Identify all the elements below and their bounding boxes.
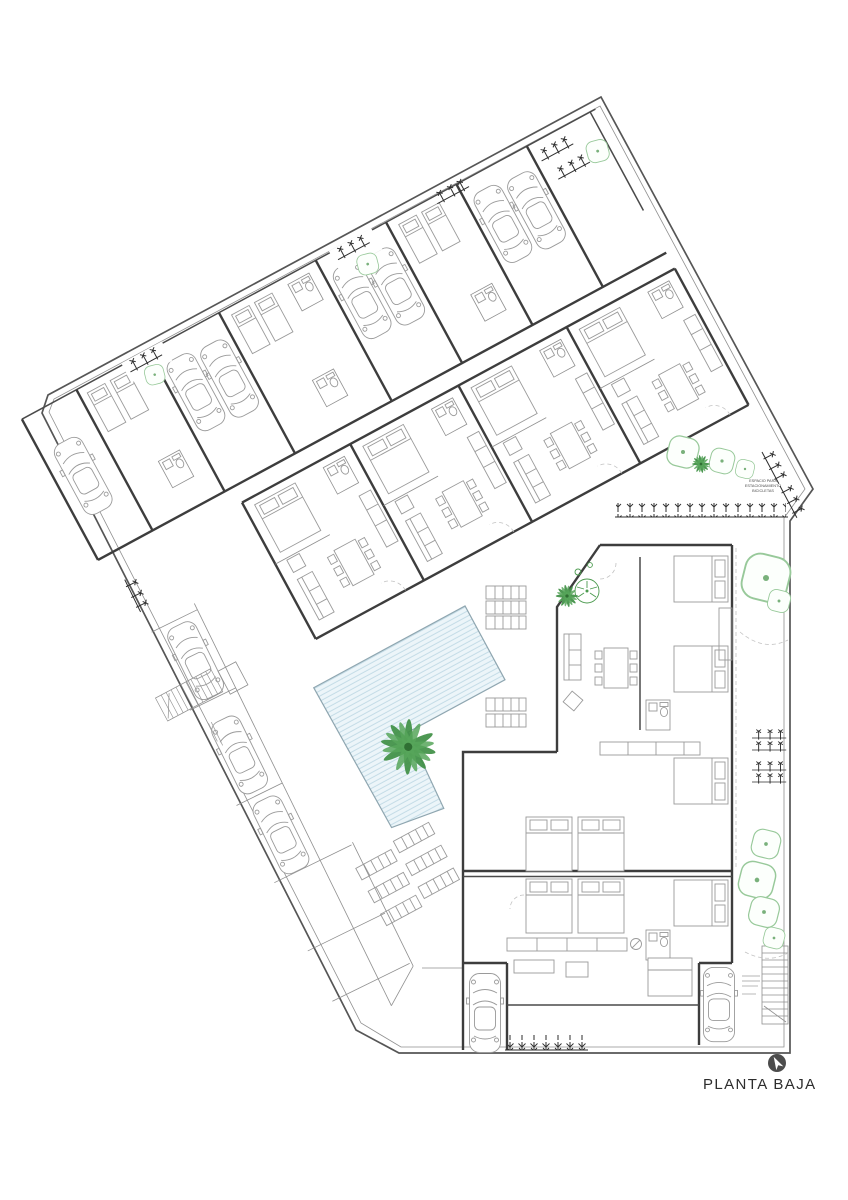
tree-icon: [747, 895, 782, 930]
street-ticks-icon: [537, 135, 575, 163]
right-garden-mid: [736, 827, 788, 958]
fence-ticks-right: [752, 730, 786, 784]
car-icon: [701, 967, 738, 1041]
bathroom: [288, 273, 323, 311]
bike-parking-line2: ESTACIONAMIENTO: [745, 484, 781, 488]
floor-plan-page: ESPACIO PARA ESTACIONAMIENTO BICICLETAS …: [0, 0, 848, 1200]
tree-icon: [575, 579, 599, 603]
tree-icon: [707, 446, 736, 475]
stair-note-label: [742, 976, 760, 994]
sun-loungers: [353, 822, 462, 925]
floor-plan-canvas: ESPACIO PARA ESTACIONAMIENTO BICICLETAS …: [0, 0, 848, 1200]
car-icon: [467, 974, 504, 1053]
tree-icon: [762, 926, 787, 951]
plan-title: PLANTA BAJA: [703, 1076, 817, 1093]
corner-garden: [556, 563, 599, 608]
bike-garden: [665, 434, 756, 480]
bike-parking-line1: ESPACIO PARA: [749, 479, 777, 483]
bathroom: [312, 369, 347, 407]
tree-icon: [749, 827, 782, 860]
tree-icon: [580, 133, 615, 168]
bathroom: [471, 283, 506, 321]
tree-icon: [734, 458, 756, 480]
bike-parking-line3: BICICLETAS: [752, 489, 774, 493]
hedge-ticks-icon: [508, 1035, 586, 1050]
street-ticks-icon: [553, 153, 591, 181]
lower-unit: [507, 879, 728, 996]
bathroom: [158, 450, 193, 488]
apartment-unit: [570, 277, 745, 463]
bike-parking-label: ESPACIO PARA ESTACIONAMIENTO BICICLETAS: [745, 479, 781, 493]
hedge-row: [615, 503, 788, 517]
tree-icon: [736, 859, 778, 901]
building-band: [21, 107, 848, 964]
garage-row: [21, 107, 672, 560]
north-arrow-icon: [768, 1054, 786, 1072]
right-garden-upper: [738, 550, 793, 644]
